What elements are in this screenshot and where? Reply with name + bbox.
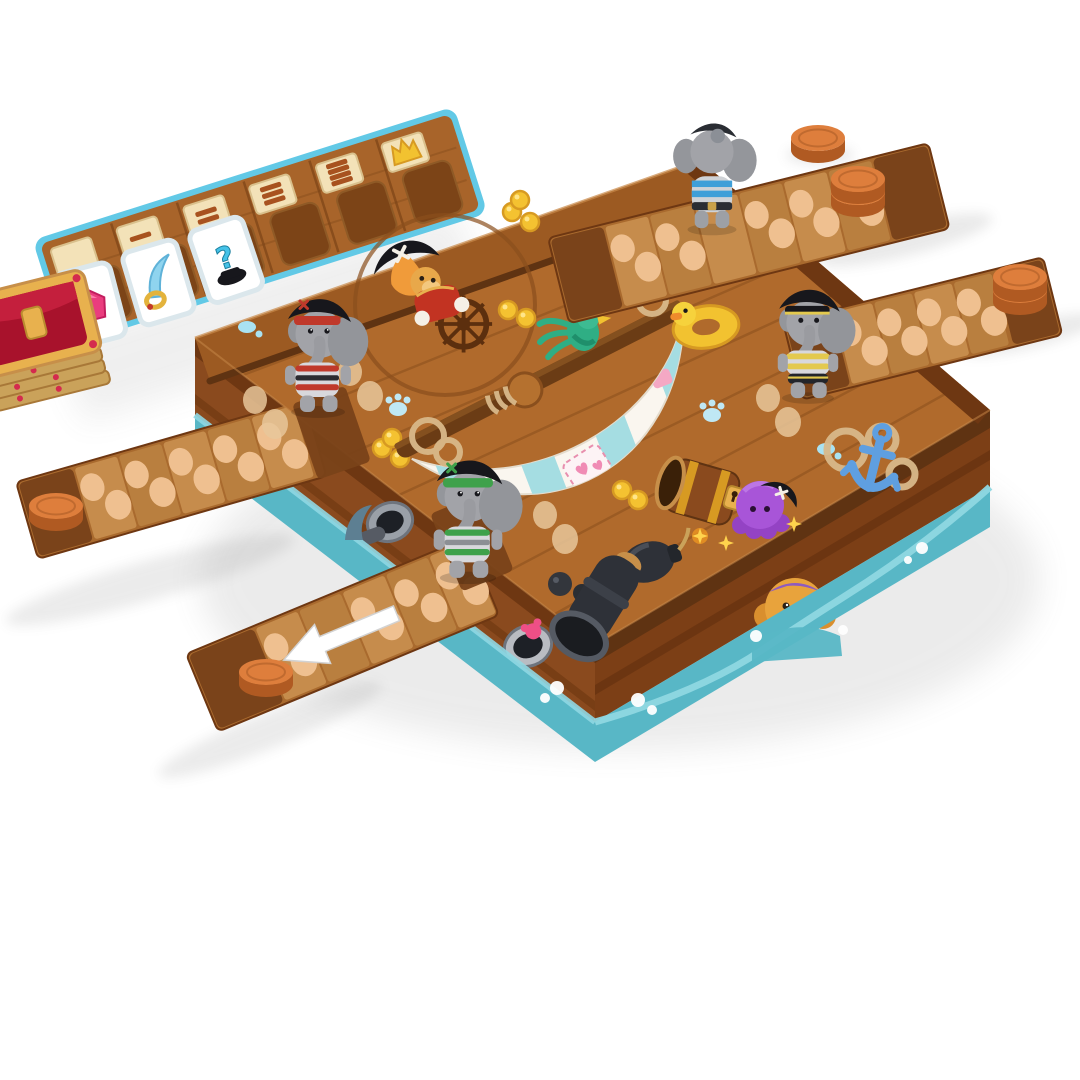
coin-left-plank bbox=[29, 493, 83, 531]
coin-bottom-plank bbox=[239, 659, 293, 697]
board-game-product-render: ? bbox=[0, 0, 1080, 1080]
coins-right-plank bbox=[993, 264, 1047, 315]
